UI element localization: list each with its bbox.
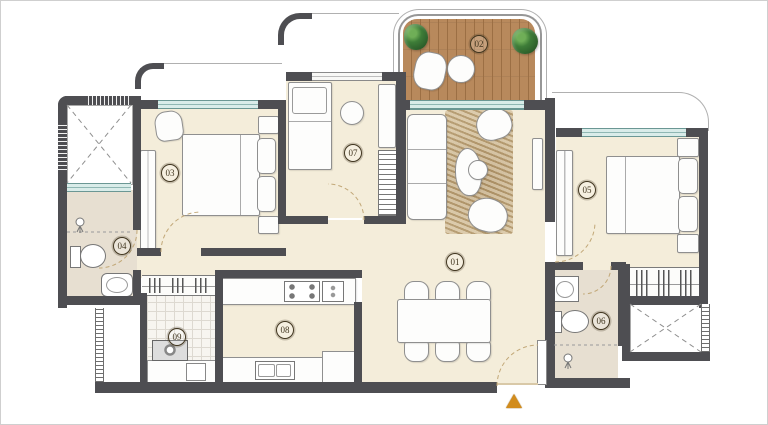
hatch-ticks <box>680 270 693 297</box>
sofa-seam <box>408 149 446 150</box>
wardrobe <box>140 150 156 254</box>
parapet-curve-1 <box>135 63 164 89</box>
nightstand <box>258 216 279 234</box>
room-label-bath-2: 06 <box>592 312 610 330</box>
sink-basin <box>276 364 291 377</box>
hob-icon <box>284 281 320 302</box>
wall-segment <box>215 270 362 278</box>
room-label-bath-1: 04 <box>113 237 131 255</box>
side-table <box>340 101 364 125</box>
hatch-ticks <box>149 278 162 293</box>
wall-segment <box>622 352 710 361</box>
slab-outline-top <box>303 13 399 15</box>
hatch-ticks <box>195 278 208 293</box>
bed-fold-line <box>625 157 626 233</box>
wall-segment <box>133 96 141 192</box>
nightstand <box>677 138 699 157</box>
wall-segment <box>201 248 286 256</box>
dining-table <box>397 299 491 343</box>
room-label-utility: 09 <box>168 328 186 346</box>
window <box>158 100 258 109</box>
dining-chair <box>466 340 491 362</box>
wall-segment <box>354 302 362 383</box>
wall-segment <box>524 100 546 110</box>
single-bed <box>288 82 332 170</box>
shaft-duct <box>67 105 133 185</box>
toilet-icon <box>80 244 106 268</box>
wardrobe <box>556 150 573 256</box>
plant-icon <box>512 28 538 54</box>
washbasin-icon <box>101 273 133 297</box>
dining-chair <box>404 340 429 362</box>
wall-segment <box>622 298 630 360</box>
room-label-bedroom-3: 07 <box>344 144 362 162</box>
wall-segment <box>140 293 147 383</box>
sliding-door-glass <box>410 100 524 110</box>
corridor-wardrobe <box>142 275 215 296</box>
wardrobe-hatched <box>378 150 397 216</box>
nightstand <box>677 234 699 253</box>
parapet-curve-2 <box>278 13 312 45</box>
hatch-ticks <box>172 278 185 293</box>
wall-segment <box>286 72 312 81</box>
sink-basin <box>258 364 275 377</box>
room-label-kitchen: 08 <box>276 321 294 339</box>
dining-chair <box>435 340 460 362</box>
ledge-hatch <box>95 308 104 382</box>
wall-segment <box>95 382 497 393</box>
wall-segment <box>278 100 286 224</box>
tv-console <box>532 138 543 190</box>
window <box>582 128 686 137</box>
room-label-deck: 02 <box>470 35 488 53</box>
louver-window <box>67 183 131 192</box>
wall-segment <box>545 378 630 388</box>
study-desk <box>378 84 396 148</box>
wall-segment <box>556 128 582 137</box>
wall-segment <box>396 100 410 110</box>
basin-bowl <box>106 277 128 293</box>
entrance-arrow <box>506 394 522 408</box>
hatch-ticks <box>636 270 649 297</box>
bed-fold-line <box>289 121 331 122</box>
wall-segment <box>58 296 142 305</box>
entry-threshold <box>497 383 538 385</box>
sofa <box>407 114 447 220</box>
entry-sidelight <box>537 340 547 385</box>
pillow <box>678 158 698 194</box>
plant-icon <box>404 24 428 50</box>
hatch-ticks <box>658 270 671 297</box>
window <box>312 72 382 81</box>
wall-segment <box>364 216 406 224</box>
wall-segment <box>278 216 328 224</box>
utility-sink <box>186 363 206 381</box>
basin-bowl <box>556 281 574 298</box>
pillow <box>257 176 276 212</box>
wall-segment <box>133 190 141 230</box>
double-bed <box>606 156 680 234</box>
kitchen-sink-icon <box>322 281 344 302</box>
wall-segment <box>699 128 708 308</box>
room-label-bedroom-1: 03 <box>161 164 179 182</box>
wall-segment <box>215 278 223 383</box>
wall-segment <box>396 72 406 224</box>
ledge-hatch <box>701 304 710 352</box>
room-label-bedroom-2: 05 <box>578 181 596 199</box>
slab-outline-left <box>157 63 282 65</box>
terrace-outline <box>552 92 709 131</box>
wall-segment <box>622 296 708 305</box>
wall-segment <box>545 98 555 222</box>
nightstand <box>258 116 279 134</box>
wall-vent-hatch <box>58 122 67 170</box>
coffee-table <box>468 160 488 180</box>
double-bed <box>182 134 260 216</box>
pillow <box>292 87 327 114</box>
washbasin-icon <box>551 276 579 302</box>
shaft-duct <box>630 304 703 354</box>
bed-fold-line <box>240 135 241 215</box>
balcony-table <box>447 55 475 83</box>
kitchen-cabinet <box>322 351 356 385</box>
room-label-living-dining: 01 <box>446 253 464 271</box>
sink-double <box>255 361 295 380</box>
sofa-seam <box>408 183 446 184</box>
pillow <box>678 196 698 232</box>
toilet-icon <box>561 310 589 333</box>
wall-segment <box>137 248 161 256</box>
wall-segment <box>140 100 158 109</box>
pillow <box>257 138 276 174</box>
floor-plan: 01 02 03 04 05 06 07 08 09 <box>0 0 768 425</box>
wall-vent-hatch <box>88 96 130 105</box>
